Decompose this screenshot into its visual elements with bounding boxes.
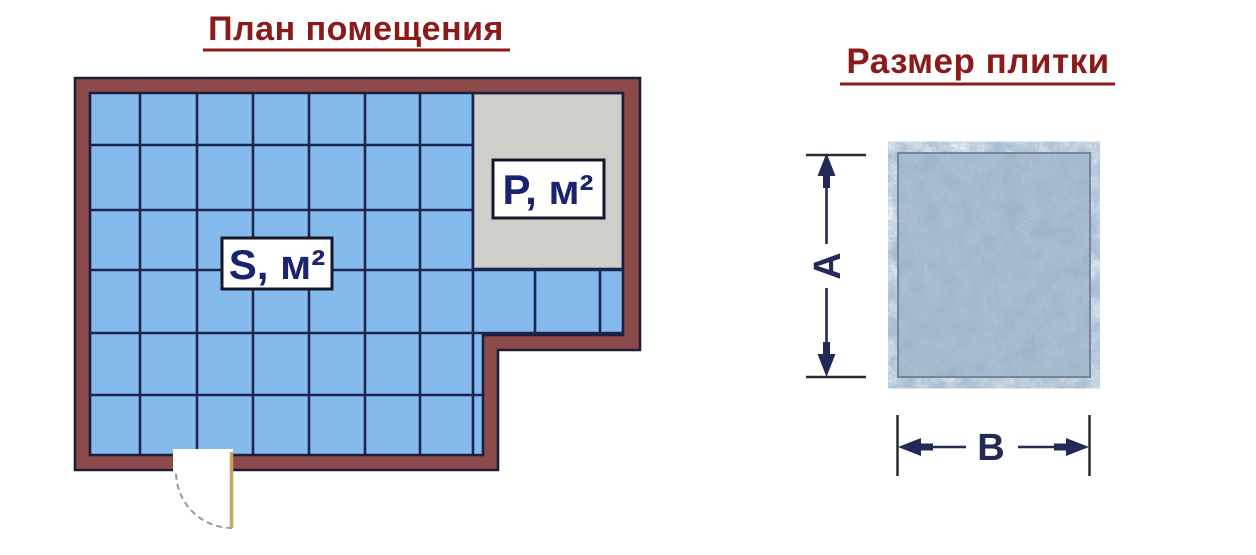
height-dimension-label: A	[807, 252, 849, 279]
floor-area-label: S, м²	[229, 241, 325, 288]
height-dimension: A	[806, 153, 866, 377]
arrow-left-icon	[898, 438, 933, 456]
width-dimension-label: B	[977, 427, 1004, 469]
remaining-area-label: P, м²	[503, 166, 594, 213]
tile-calculator-diagram: План помещения	[0, 0, 1256, 555]
tile-size-panel: Размер плитки A B	[806, 42, 1115, 476]
door	[173, 449, 233, 528]
tile-sample	[898, 153, 1090, 377]
tile-calculator-illustration: План помещения	[0, 0, 1256, 555]
room-plan: План помещения	[75, 10, 640, 528]
arrow-right-icon	[1054, 438, 1089, 456]
door-opening	[173, 449, 233, 475]
arrow-down-icon	[818, 342, 836, 377]
tile-size-title: Размер плитки	[846, 42, 1109, 81]
floor-area-label-box: S, м²	[222, 238, 332, 289]
arrow-up-icon	[818, 153, 836, 188]
remaining-area-label-box: P, м²	[493, 160, 604, 218]
width-dimension: B	[898, 415, 1090, 476]
room-plan-title: План помещения	[208, 10, 504, 48]
tile-sample-texture	[898, 153, 1090, 377]
door-swing-arc	[176, 472, 232, 528]
